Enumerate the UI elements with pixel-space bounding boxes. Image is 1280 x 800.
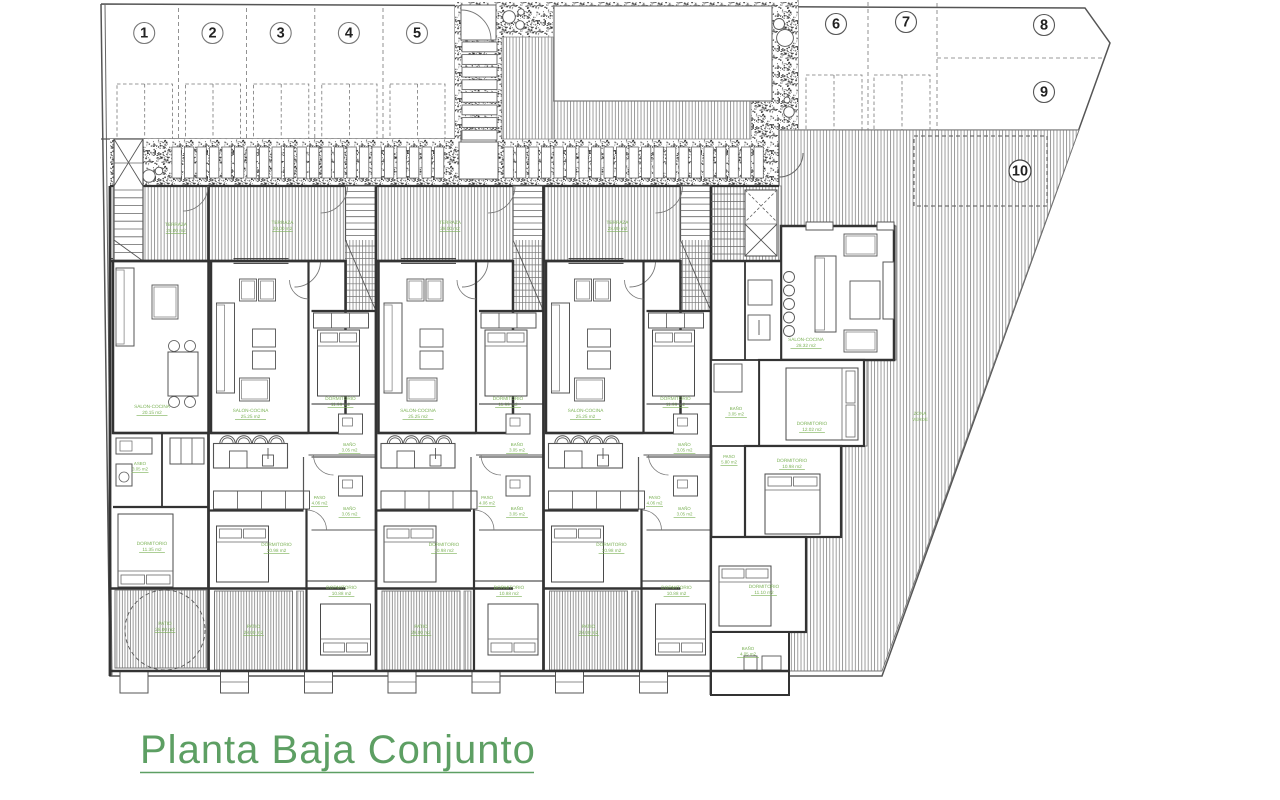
svg-text:BAÑO: BAÑO	[742, 646, 755, 651]
svg-text:20.15 m2: 20.15 m2	[142, 410, 162, 415]
svg-text:28.00 m2: 28.00 m2	[608, 226, 628, 231]
svg-text:3: 3	[277, 26, 285, 42]
svg-text:8: 8	[1040, 18, 1048, 34]
svg-text:SALON-COCINA: SALON-COCINA	[788, 337, 825, 342]
svg-text:11.35 m2: 11.35 m2	[142, 547, 162, 552]
svg-text:3.05 m2: 3.05 m2	[132, 467, 148, 472]
svg-text:PASO: PASO	[314, 495, 326, 500]
svg-text:PASO: PASO	[649, 495, 661, 500]
svg-text:10.98 m2: 10.98 m2	[602, 548, 622, 553]
svg-text:TERRAZA: TERRAZA	[165, 222, 188, 227]
svg-text:BAÑO: BAÑO	[511, 506, 524, 511]
svg-text:10.88 m2: 10.88 m2	[667, 591, 687, 596]
svg-text:10.88 m2: 10.88 m2	[332, 591, 352, 596]
svg-text:DORMITORIO: DORMITORIO	[429, 542, 460, 547]
svg-text:PATIO: PATIO	[582, 624, 596, 629]
svg-text:4: 4	[345, 26, 353, 42]
svg-text:3.05 m2: 3.05 m2	[342, 448, 358, 453]
svg-text:10.98 m2: 10.98 m2	[267, 548, 287, 553]
svg-text:DORMITORIO: DORMITORIO	[660, 396, 691, 401]
svg-text:SALON-COCINA: SALON-COCINA	[400, 408, 437, 413]
svg-text:25.25 m2: 25.25 m2	[576, 414, 596, 419]
svg-text:4.05 m2: 4.05 m2	[740, 652, 756, 657]
svg-text:28.00 m2: 28.00 m2	[244, 630, 264, 635]
svg-text:3.05 m2: 3.05 m2	[677, 448, 693, 453]
svg-text:PATIO: PATIO	[158, 621, 172, 626]
svg-text:10.88 m2: 10.88 m2	[499, 591, 519, 596]
svg-text:11.10 m2: 11.10 m2	[754, 590, 774, 595]
svg-text:BAÑO: BAÑO	[511, 442, 524, 447]
svg-text:BAÑO: BAÑO	[343, 442, 356, 447]
svg-text:PASO: PASO	[723, 454, 735, 459]
svg-text:DORMITORIO: DORMITORIO	[596, 542, 627, 547]
svg-text:DORMITORIO: DORMITORIO	[261, 542, 292, 547]
svg-text:3.05 m2: 3.05 m2	[342, 512, 358, 517]
svg-text:5: 5	[413, 26, 421, 42]
svg-text:6: 6	[832, 17, 840, 33]
svg-text:DORMITORIO: DORMITORIO	[749, 584, 780, 589]
svg-text:BAÑO: BAÑO	[343, 506, 356, 511]
svg-text:10.98 m2: 10.98 m2	[434, 548, 454, 553]
svg-text:Planta Baja Conjunto: Planta Baja Conjunto	[140, 728, 536, 772]
svg-text:ZONA: ZONA	[914, 411, 928, 416]
svg-text:SALON-COCINA: SALON-COCINA	[568, 408, 605, 413]
svg-text:PASO: PASO	[481, 495, 493, 500]
svg-text:BAÑO: BAÑO	[678, 442, 691, 447]
svg-text:PATIO: PATIO	[247, 624, 261, 629]
svg-text:4.06 m2: 4.06 m2	[479, 501, 495, 506]
svg-text:DORMITORIO: DORMITORIO	[777, 458, 808, 463]
svg-text:PATIO: PATIO	[414, 624, 428, 629]
svg-text:10.98 m2: 10.98 m2	[782, 464, 802, 469]
svg-text:TERRAZA: TERRAZA	[607, 220, 630, 225]
svg-text:DORMITORIO: DORMITORIO	[326, 585, 357, 590]
svg-text:DORMITORIO: DORMITORIO	[494, 585, 525, 590]
svg-text:DORMITORIO: DORMITORIO	[661, 585, 692, 590]
svg-text:28.00 m2: 28.00 m2	[166, 228, 186, 233]
svg-text:5.80 m2: 5.80 m2	[721, 460, 737, 465]
svg-text:25.25 m2: 25.25 m2	[408, 414, 428, 419]
svg-text:28.00 m2: 28.00 m2	[273, 226, 293, 231]
svg-text:1: 1	[140, 26, 148, 42]
svg-text:TERRAZA: TERRAZA	[439, 220, 462, 225]
svg-text:SALON-COCINA: SALON-COCINA	[134, 404, 171, 409]
svg-text:TERRAZA: TERRAZA	[272, 220, 295, 225]
svg-text:SALON-COCINA: SALON-COCINA	[233, 408, 270, 413]
svg-text:4.06 m2: 4.06 m2	[647, 501, 663, 506]
svg-text:25.25 m2: 25.25 m2	[241, 414, 261, 419]
svg-text:28.00 m2: 28.00 m2	[440, 226, 460, 231]
svg-text:BAÑO: BAÑO	[678, 506, 691, 511]
svg-text:28.32 m2: 28.32 m2	[796, 343, 816, 348]
svg-text:4.06 m2: 4.06 m2	[312, 501, 328, 506]
svg-text:3.05 m2: 3.05 m2	[728, 412, 744, 417]
svg-text:3.05 m2: 3.05 m2	[509, 448, 525, 453]
svg-text:28.00 m2: 28.00 m2	[155, 627, 175, 632]
svg-text:3.05 m2: 3.05 m2	[509, 512, 525, 517]
svg-text:BAÑO: BAÑO	[730, 406, 743, 411]
svg-text:2: 2	[208, 26, 216, 42]
svg-text:28.00 m2: 28.00 m2	[411, 630, 431, 635]
svg-text:DORMITORIO: DORMITORIO	[325, 396, 356, 401]
svg-text:9: 9	[1040, 85, 1048, 101]
svg-text:DORMITORIO: DORMITORIO	[493, 396, 524, 401]
svg-text:VERDE: VERDE	[912, 417, 928, 422]
svg-text:10: 10	[1012, 164, 1028, 180]
svg-text:12.02 m2: 12.02 m2	[802, 427, 822, 432]
svg-text:7: 7	[902, 15, 910, 31]
svg-text:28.00 m2: 28.00 m2	[579, 630, 599, 635]
svg-text:DORMITORIO: DORMITORIO	[137, 541, 168, 546]
svg-text:3.05 m2: 3.05 m2	[677, 512, 693, 517]
svg-text:DORMITORIO: DORMITORIO	[797, 421, 828, 426]
svg-text:ASEO: ASEO	[134, 461, 147, 466]
